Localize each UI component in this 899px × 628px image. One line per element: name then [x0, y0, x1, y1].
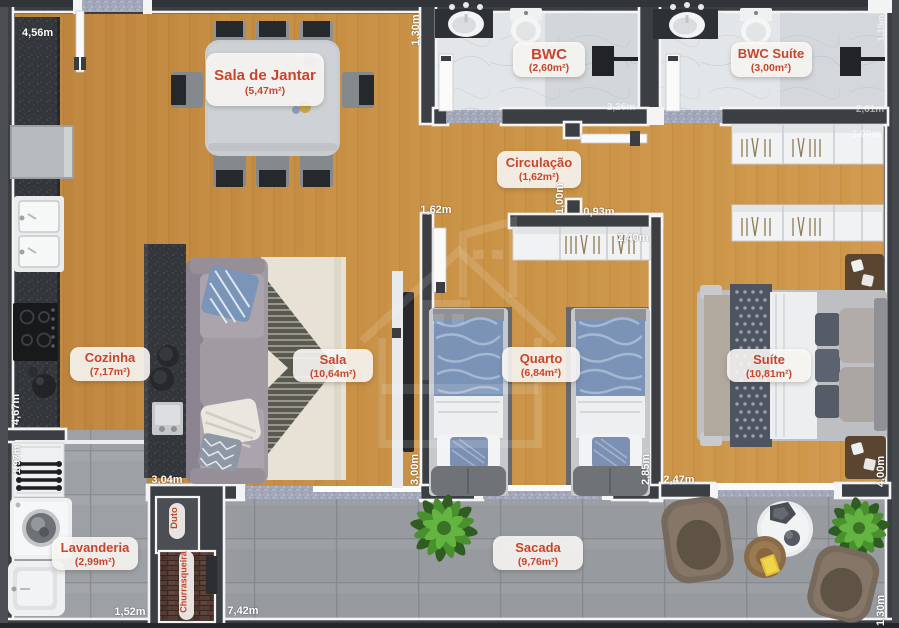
svg-text:3,04m: 3,04m: [151, 474, 182, 486]
svg-text:2,26m: 2,26m: [607, 102, 635, 113]
svg-text:7,42m: 7,42m: [227, 605, 258, 617]
svg-text:4,67m: 4,67m: [10, 394, 22, 425]
svg-text:4,00m: 4,00m: [875, 456, 887, 487]
svg-text:(7,17m²): (7,17m²): [90, 366, 130, 378]
svg-text:Quarto: Quarto: [520, 351, 563, 366]
svg-text:(10,64m²): (10,64m²): [310, 368, 356, 380]
svg-text:BWC Suíte: BWC Suíte: [738, 46, 804, 61]
svg-text:2,47m: 2,47m: [663, 474, 694, 486]
svg-text:1,62m: 1,62m: [420, 204, 451, 216]
svg-text:1,30m: 1,30m: [875, 595, 887, 626]
svg-text:1,15m: 1,15m: [876, 15, 887, 42]
svg-text:1,52m: 1,52m: [114, 606, 145, 618]
svg-text:3,00m: 3,00m: [409, 454, 421, 485]
svg-text:(5,47m²): (5,47m²): [245, 85, 285, 97]
svg-text:Cozinha: Cozinha: [85, 350, 136, 365]
svg-text:1,00m: 1,00m: [852, 129, 880, 140]
svg-text:Sala de Jantar: Sala de Jantar: [214, 67, 316, 84]
svg-text:BWC: BWC: [531, 46, 567, 63]
svg-text:2,61m: 2,61m: [856, 104, 884, 115]
svg-text:2,40m: 2,40m: [617, 232, 648, 244]
svg-text:1,00m: 1,00m: [554, 183, 566, 214]
svg-text:0,93m: 0,93m: [583, 206, 614, 218]
svg-text:(10,81m²): (10,81m²): [746, 368, 792, 380]
svg-text:4,56m: 4,56m: [22, 27, 53, 39]
svg-text:(9,76m²): (9,76m²): [518, 556, 558, 568]
svg-text:(2,99m²): (2,99m²): [75, 556, 115, 568]
svg-text:Lavanderia: Lavanderia: [61, 540, 130, 555]
svg-text:Duto: Duto: [169, 507, 180, 529]
svg-text:(3,00m²): (3,00m²): [751, 62, 791, 74]
svg-text:2,85m: 2,85m: [640, 454, 652, 485]
svg-text:Churrasqueira: Churrasqueira: [179, 550, 189, 613]
svg-text:1,97m: 1,97m: [12, 446, 23, 474]
svg-text:Suíte: Suíte: [753, 352, 785, 367]
svg-text:Circulação: Circulação: [506, 155, 573, 170]
svg-text:1,30m: 1,30m: [410, 14, 422, 45]
svg-text:(2,60m²): (2,60m²): [529, 62, 569, 74]
svg-text:Sacada: Sacada: [515, 540, 561, 555]
svg-text:(1,62m²): (1,62m²): [519, 171, 559, 183]
svg-text:Sala: Sala: [320, 352, 348, 367]
svg-text:(6,84m²): (6,84m²): [521, 367, 561, 379]
